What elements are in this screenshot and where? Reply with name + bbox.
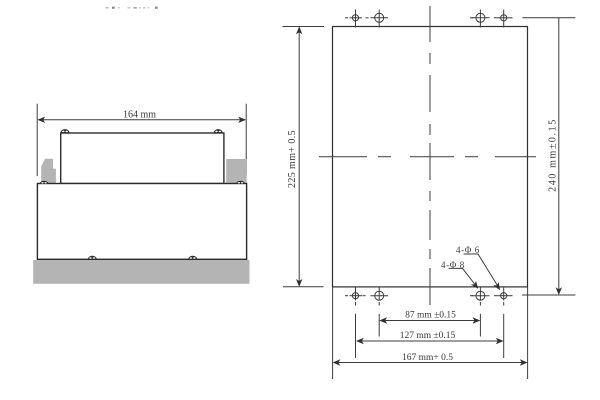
svg-text:167 mm+ 0.5: 167 mm+ 0.5 bbox=[402, 353, 453, 363]
svg-text:87 mm ±0.15: 87 mm ±0.15 bbox=[405, 311, 456, 321]
svg-text:240 mm±0.15: 240 mm±0.15 bbox=[548, 118, 559, 192]
svg-text:164 mm: 164 mm bbox=[123, 110, 156, 121]
svg-text:127 mm ±0.15: 127 mm ±0.15 bbox=[400, 331, 456, 341]
svg-text:225 mm+ 0.5: 225 mm+ 0.5 bbox=[287, 130, 298, 188]
